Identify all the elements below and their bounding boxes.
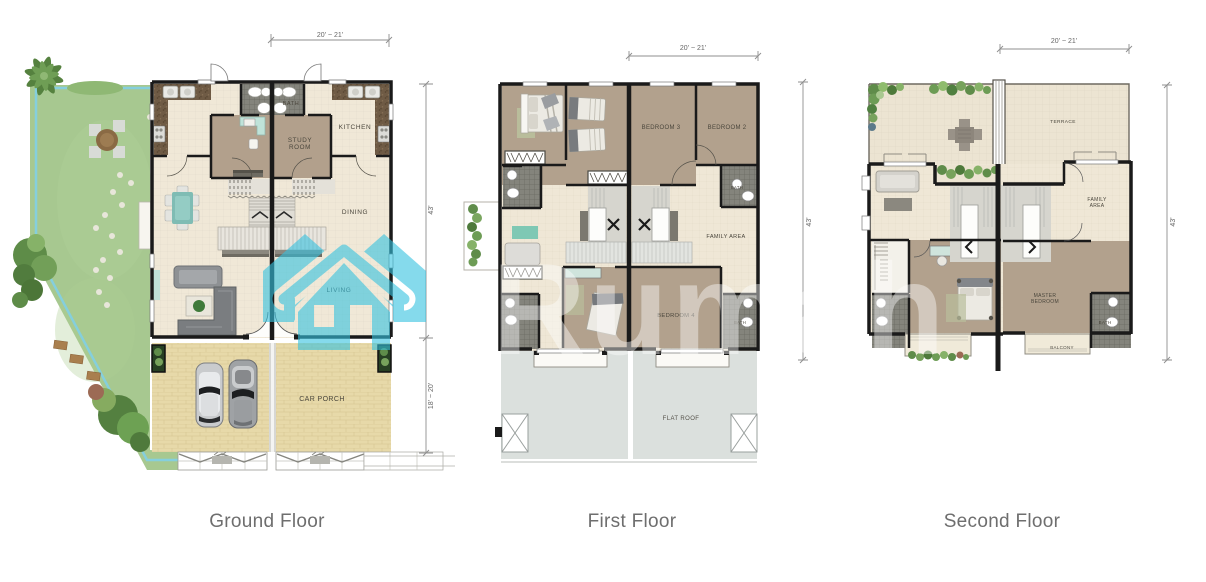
svg-text:BATH: BATH: [1099, 320, 1112, 325]
svg-text:43': 43': [1170, 217, 1177, 226]
svg-text:Second Floor: Second Floor: [944, 511, 1061, 532]
svg-text:20' ~ 21': 20' ~ 21': [1051, 38, 1077, 45]
svg-text:BATH: BATH: [731, 185, 743, 190]
svg-text:ROOM: ROOM: [289, 144, 311, 151]
svg-text:BEDROOM 3: BEDROOM 3: [642, 125, 681, 131]
svg-text:Ground Floor: Ground Floor: [209, 511, 325, 532]
svg-text:20' ~ 21': 20' ~ 21': [680, 45, 706, 52]
svg-text:AREA: AREA: [1090, 203, 1105, 209]
svg-text:First Floor: First Floor: [588, 511, 677, 532]
svg-text:KITCHEN: KITCHEN: [339, 124, 372, 131]
svg-text:43': 43': [806, 217, 813, 226]
svg-text:TERRACE: TERRACE: [1050, 119, 1076, 125]
svg-text:BALCONY: BALCONY: [1050, 345, 1074, 350]
svg-text:Rumah: Rumah: [492, 236, 948, 382]
svg-text:CAR PORCH: CAR PORCH: [299, 396, 345, 403]
svg-text:43': 43': [428, 205, 435, 214]
svg-text:18' ~ 20': 18' ~ 20': [428, 383, 435, 409]
svg-text:FLAT ROOF: FLAT ROOF: [663, 416, 700, 422]
svg-text:20' ~ 21': 20' ~ 21': [317, 32, 343, 39]
svg-text:DINING: DINING: [342, 209, 368, 216]
svg-text:STUDY: STUDY: [288, 137, 313, 144]
svg-text:BEDROOM 2: BEDROOM 2: [708, 125, 747, 131]
svg-text:BEDROOM: BEDROOM: [1031, 299, 1059, 305]
svg-text:BATH: BATH: [283, 101, 300, 107]
